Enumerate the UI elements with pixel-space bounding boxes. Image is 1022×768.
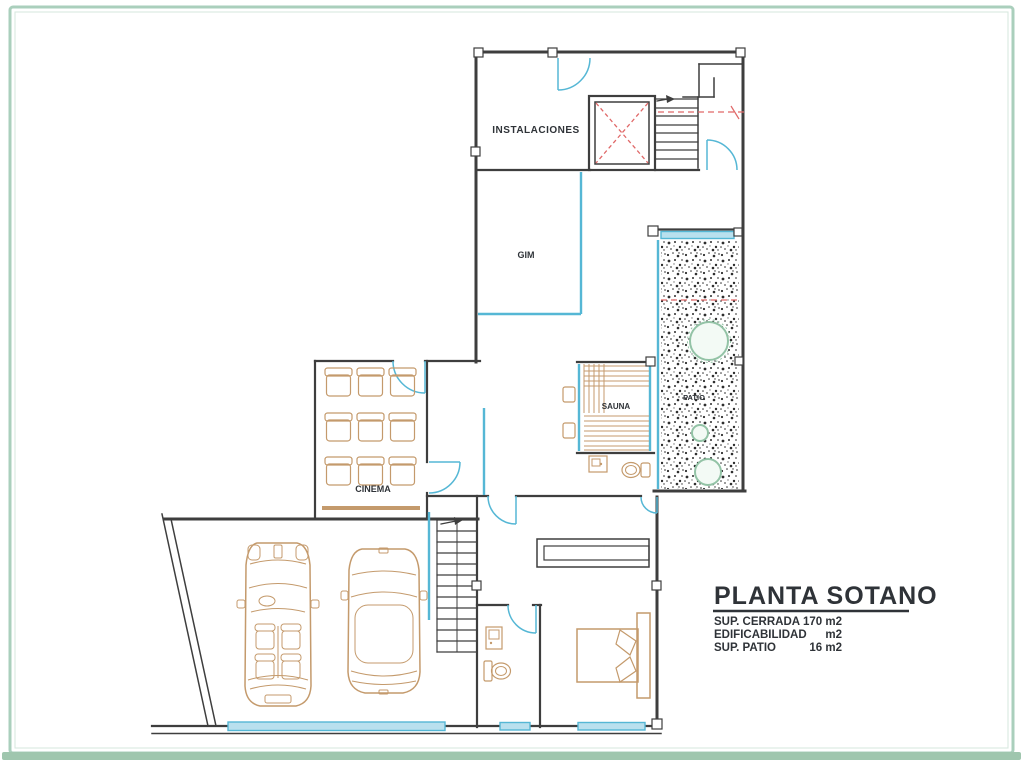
door-cinema — [393, 361, 425, 393]
row-value: 16 m2 — [809, 642, 842, 654]
window-bedroom — [578, 723, 645, 731]
aseo-fixtures — [589, 456, 650, 478]
side-mirror — [420, 591, 427, 600]
patio: PATIO — [661, 240, 739, 489]
tree-medium — [695, 459, 721, 485]
gim-label: GIM — [518, 250, 535, 260]
door-hall — [429, 462, 460, 493]
door-upper-landing — [707, 140, 737, 170]
window-bathroom — [500, 723, 530, 731]
sauna-label: SAUNA — [602, 402, 631, 411]
patio-gravel — [661, 240, 739, 489]
outer-walls-bottom — [152, 514, 661, 734]
car-seats — [255, 624, 301, 679]
car-convertible — [237, 543, 319, 706]
door-bathroom — [508, 605, 536, 633]
room-sauna: SAUNA — [563, 364, 649, 450]
floor-plan-page: PATIO SAUNA — [0, 0, 1022, 768]
bed-headboard — [637, 613, 650, 698]
side-mirror — [237, 600, 245, 608]
staircase-lower — [437, 517, 477, 652]
tree-small — [692, 425, 708, 441]
side-mirror — [311, 600, 319, 608]
side-mirror — [341, 591, 348, 600]
sauna-heater — [563, 387, 575, 402]
room-cinema: CINEMA — [322, 368, 420, 510]
stair-arrow-head — [666, 95, 675, 103]
patio-label: PATIO — [683, 393, 705, 402]
row-value: 170 m2 — [803, 616, 842, 628]
row-label: SUP. CERRADA — [714, 616, 800, 628]
stair-direction-arrow — [441, 521, 456, 524]
bathroom — [484, 627, 511, 681]
elevator-shaft — [589, 96, 655, 170]
elevator-x-diagonal — [596, 103, 648, 163]
bedroom — [537, 539, 650, 698]
cinema-seats — [325, 368, 416, 485]
row-label: EDIFICABILIDAD — [714, 629, 807, 641]
car-roof — [355, 605, 413, 663]
title-block: PLANTA SOTANO SUP. CERRADA 170 m2 EDIFIC… — [713, 582, 938, 654]
sauna-heater — [563, 423, 575, 438]
patio-glazing-strip — [661, 232, 734, 239]
closet — [537, 539, 649, 567]
toilet-icon — [484, 661, 492, 681]
cinema-label: CINEMA — [355, 484, 391, 494]
plan-title: PLANTA SOTANO — [714, 582, 938, 610]
sauna-bench-bottom — [584, 416, 649, 450]
instalaciones-label: INSTALACIONES — [492, 125, 579, 136]
garage-door — [228, 722, 445, 731]
steering-wheel — [259, 596, 275, 606]
bed-pillow — [616, 630, 636, 655]
door-instalaciones — [558, 58, 590, 90]
toilet-icon — [622, 463, 640, 478]
staircase-upper — [657, 95, 745, 159]
car-sedan — [341, 548, 427, 694]
floor-plan-drawing: PATIO SAUNA — [0, 0, 1022, 768]
page-frame — [2, 7, 1021, 760]
door-bedroom-hall — [488, 496, 516, 524]
bed-pillow — [616, 657, 636, 682]
tree-large — [690, 322, 728, 360]
frame-bottom-band — [2, 752, 1021, 760]
bed — [577, 629, 638, 682]
cinema-screen — [322, 506, 420, 510]
row-value: m2 — [825, 629, 842, 641]
door-bedroom — [641, 497, 657, 513]
row-label: SUP. PATIO — [714, 642, 776, 654]
elevator-x-diagonal — [596, 103, 648, 163]
